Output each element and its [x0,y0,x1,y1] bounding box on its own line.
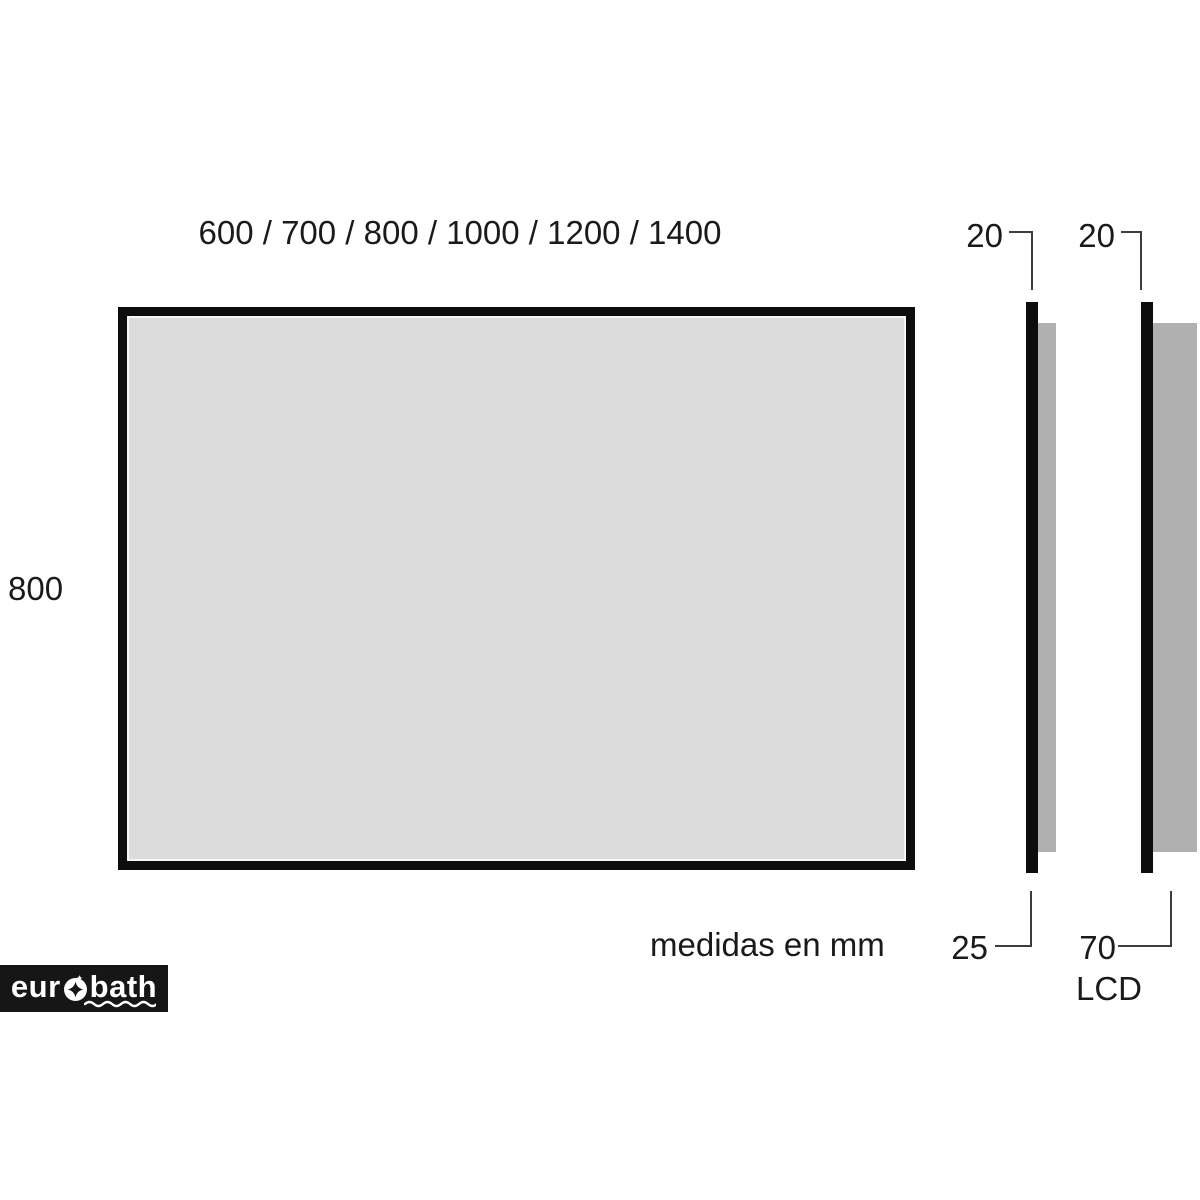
mirror-front-view [118,307,915,870]
logo-sparkle-icon [62,975,89,1002]
side2-depth-leader-horizontal [1118,945,1172,947]
side1-thickness-leader-horizontal [1009,231,1032,233]
width-options-label: 600 / 700 / 800 / 1000 / 1200 / 1400 [130,216,790,249]
side2-lcd-panel-bar [1153,323,1197,852]
side2-thickness-leader-horizontal [1121,231,1142,233]
logo-wave-icon [84,999,156,1009]
side1-depth-label: 25 [920,931,988,964]
logo-text-suffix: bath [90,971,157,1002]
side1-thickness-leader-vertical [1031,231,1033,290]
side1-depth-leader-vertical [1030,891,1032,947]
technical-drawing-page: 600 / 700 / 800 / 1000 / 1200 / 1400 800… [0,0,1200,1200]
units-note: medidas en mm [650,928,885,961]
side2-thickness-label: 20 [1050,219,1115,252]
side2-thickness-leader-vertical [1140,231,1142,290]
side2-depth-leader-vertical [1170,891,1172,947]
logo-wordmark: eur bath [11,971,157,1002]
side1-back-panel-bar [1038,323,1056,852]
side2-mirror-glass-bar [1141,302,1153,873]
side1-mirror-glass-bar [1026,302,1038,873]
lcd-label: LCD [1076,972,1142,1005]
side2-depth-label: 70 [1048,931,1116,964]
eurobath-logo: eur bath [0,965,168,1012]
side1-depth-leader-horizontal [995,945,1032,947]
side1-thickness-label: 20 [938,219,1003,252]
height-label: 800 [8,572,63,605]
logo-text-prefix: eur [11,971,61,1002]
